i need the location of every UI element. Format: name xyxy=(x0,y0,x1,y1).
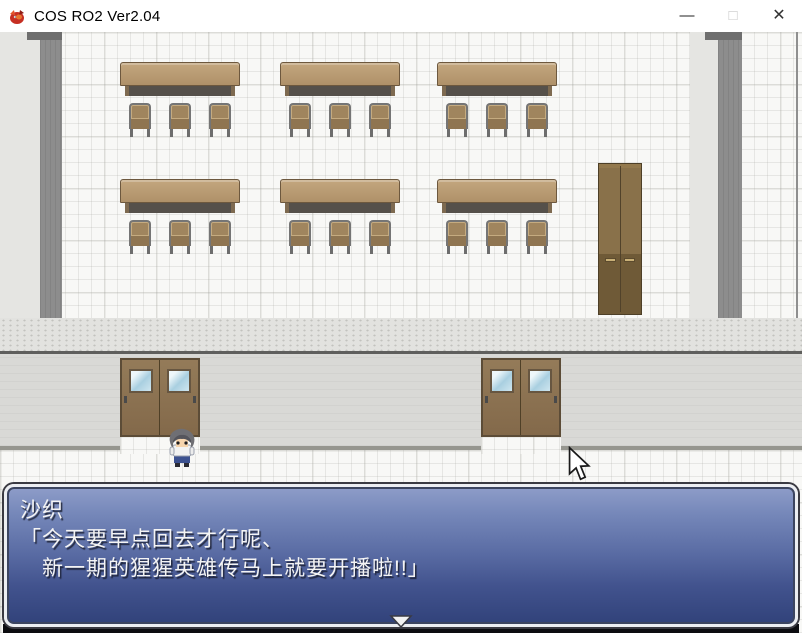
app-window: COS RO2 Ver2.04 — □ ✕ xyxy=(0,0,802,633)
door-leaf xyxy=(483,360,521,435)
dialogue-speaker: 沙织 xyxy=(20,496,781,525)
desk-group xyxy=(437,179,557,285)
app-icon xyxy=(7,6,27,26)
minimize-button[interactable]: — xyxy=(664,0,710,32)
desk-group xyxy=(437,62,557,168)
chair xyxy=(329,220,351,254)
desk-table xyxy=(437,62,557,102)
dialogue-line: 新一期的猩猩英雄传马上就要开播啦!!」 xyxy=(20,554,781,583)
right-outer-area xyxy=(690,32,718,318)
door-leaf xyxy=(521,360,559,435)
left-outer-area xyxy=(0,32,40,318)
desk-table xyxy=(280,62,400,102)
right-wall-cap xyxy=(705,32,742,40)
cabinet-handle xyxy=(624,258,635,262)
maximize-button[interactable]: □ xyxy=(710,0,756,32)
door-window xyxy=(167,369,191,393)
door-window xyxy=(129,369,153,393)
chair xyxy=(329,103,351,137)
desk-table xyxy=(437,179,557,219)
dialogue-text: 沙织 「今天要早点回去才行呢、 新一期的猩猩英雄传马上就要开播啦!!」 xyxy=(7,487,795,583)
doorstep xyxy=(481,436,561,454)
window-controls: — □ ✕ xyxy=(664,0,802,32)
game-viewport[interactable]: 沙织 「今天要早点回去才行呢、 新一期的猩猩英雄传马上就要开播啦!!」 xyxy=(0,32,802,633)
chair xyxy=(209,220,231,254)
desk-table xyxy=(120,179,240,219)
desk-group xyxy=(120,179,240,285)
double-door xyxy=(481,358,561,437)
dialogue-box: 沙织 「今天要早点回去才行呢、 新一期的猩猩英雄传马上就要开播啦!!」 xyxy=(4,484,798,627)
chair xyxy=(446,220,468,254)
desk-group xyxy=(120,62,240,168)
desk-table xyxy=(120,62,240,102)
desk-group xyxy=(280,179,400,285)
titlebar: COS RO2 Ver2.04 — □ ✕ xyxy=(0,0,802,32)
chair xyxy=(169,103,191,137)
door-window xyxy=(528,369,552,393)
door-leaf xyxy=(160,360,198,435)
chair xyxy=(369,103,391,137)
continue-indicator[interactable] xyxy=(389,614,413,628)
chair xyxy=(129,103,151,137)
mouse-cursor xyxy=(567,446,591,482)
door-handle xyxy=(124,396,127,403)
chair xyxy=(486,103,508,137)
chair xyxy=(289,220,311,254)
desk-table xyxy=(280,179,400,219)
door-window xyxy=(490,369,514,393)
door-handle xyxy=(554,396,557,403)
close-button[interactable]: ✕ xyxy=(756,0,802,32)
window-title: COS RO2 Ver2.04 xyxy=(34,8,160,25)
desk-group xyxy=(280,62,400,168)
chair xyxy=(169,220,191,254)
chair xyxy=(486,220,508,254)
chair xyxy=(369,220,391,254)
left-wall-cap xyxy=(27,32,62,40)
chair xyxy=(129,220,151,254)
door-handle xyxy=(485,396,488,403)
hall-wall-top xyxy=(0,318,802,352)
double-door xyxy=(120,358,200,437)
door-handle xyxy=(193,396,196,403)
chair xyxy=(526,103,548,137)
chair xyxy=(289,103,311,137)
left-wall xyxy=(40,32,62,318)
cabinet-handle xyxy=(605,258,616,262)
player-character xyxy=(166,428,198,468)
chair xyxy=(209,103,231,137)
right-edge-line xyxy=(796,32,798,318)
dialogue-line: 「今天要早点回去才行呢、 xyxy=(20,525,781,554)
door-leaf xyxy=(122,360,160,435)
cabinet xyxy=(598,163,642,315)
chair xyxy=(526,220,548,254)
chair xyxy=(446,103,468,137)
right-wall xyxy=(718,32,742,318)
